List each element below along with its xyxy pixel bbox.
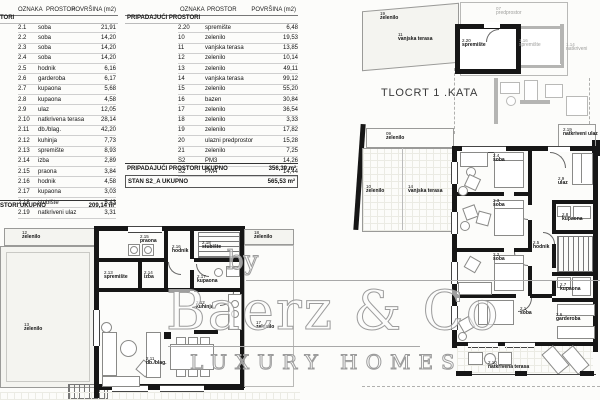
wall-interior xyxy=(552,272,598,276)
site-label-18: 18zelenilo xyxy=(254,230,272,240)
row-povrsina: 49,11 xyxy=(283,66,298,73)
room-name: predprostor xyxy=(496,11,522,16)
row-prostor: soba xyxy=(38,25,51,32)
row-prostor: db./blag. xyxy=(38,127,61,134)
room-name: soba xyxy=(493,158,505,163)
row-prostor: soba xyxy=(38,45,51,52)
wall-interior xyxy=(552,230,598,234)
row-oznaka: 2.6 xyxy=(18,76,26,83)
row-oznaka: 2.2 xyxy=(18,35,26,42)
column xyxy=(164,332,171,339)
row-povrsina: 3,84 xyxy=(104,169,116,176)
table-row: 20 ulazni predprostor 15,28 xyxy=(178,136,298,146)
wall-interior xyxy=(514,192,528,196)
left-area-table: OZNAKA PROSTOR POVRŠINA (m2) TORI 2.1 so… xyxy=(0,6,118,218)
row-prostor: zelenilo xyxy=(205,107,225,114)
wall-interior xyxy=(98,258,166,262)
room-label-2-3: 2.3soba xyxy=(493,198,505,208)
row-povrsina: 14,20 xyxy=(101,35,116,42)
wall-interior xyxy=(552,298,598,302)
site-name: zelenilo xyxy=(24,327,42,332)
left-table-total: STORI UKUPNO 209,14 m² xyxy=(0,200,116,211)
table-row: 2.17 kupaona 3,03 xyxy=(18,188,116,198)
fixture xyxy=(500,82,520,94)
row-oznaka: 10 xyxy=(178,35,185,42)
room-name: kupaona xyxy=(197,279,218,284)
row-oznaka: 12 xyxy=(178,55,185,62)
row-povrsina: 4,58 xyxy=(104,97,116,104)
room-label-2-4: 2.4soba xyxy=(493,153,505,163)
watermark-line xyxy=(246,280,600,281)
row-povrsina: 10,14 xyxy=(283,55,298,62)
table-row: 10 zelenilo 19,53 xyxy=(178,33,298,43)
row-oznaka: 2.10 xyxy=(18,117,30,124)
boundary-dashed-line xyxy=(589,78,590,124)
section-label: PRIPADAJUĆI PROSTORI xyxy=(127,15,200,21)
row-prostor: bazen xyxy=(205,97,221,104)
row-povrsina: 30,84 xyxy=(283,97,298,104)
header-povrsina: POVRŠINA (m2) xyxy=(251,7,296,14)
wall-interior xyxy=(552,244,556,268)
table-row: 2.10 natkrivena terasa 28,14 xyxy=(18,116,116,126)
terrace-table xyxy=(468,352,483,365)
site-name: zelenilo xyxy=(254,235,272,240)
chair xyxy=(176,337,186,345)
table-row: 2.15 praona 3,84 xyxy=(18,167,116,177)
row-oznaka: 2.20 xyxy=(178,25,190,32)
row-prostor: zelenilo xyxy=(205,66,225,73)
room-label-2-8: 2.8kupaona xyxy=(562,212,583,222)
wall-interior xyxy=(528,266,532,296)
row-povrsina: 14,20 xyxy=(101,45,116,52)
side-table xyxy=(458,332,467,341)
table-row: 17 zelenilo 36,54 xyxy=(178,105,298,115)
row-oznaka: 19 xyxy=(178,127,185,134)
room-name: praona xyxy=(140,239,157,244)
row-prostor: vanjska terasa xyxy=(205,76,244,83)
row-oznaka: 2.7 xyxy=(18,86,26,93)
room-label-2-6: 2.6garderoba xyxy=(556,312,580,322)
wall-interior xyxy=(530,294,552,298)
table-row: 19 zelenilo 17,82 xyxy=(178,126,298,136)
room-label-2-7: 2.7kupaona xyxy=(560,282,581,292)
room-label-2-19: 2.19 natkriveni ulaz xyxy=(563,127,598,137)
row-oznaka: 20 xyxy=(178,138,185,145)
room-name: garderoba xyxy=(556,317,580,322)
site-name: zelenilo xyxy=(380,16,398,21)
table-row: 2.6 garderoba 6,17 xyxy=(18,74,116,84)
row-oznaka: 15 xyxy=(178,86,185,93)
fixture xyxy=(566,96,588,116)
row-prostor: izba xyxy=(38,158,49,165)
row-povrsina: 8,93 xyxy=(104,148,116,155)
row-prostor: zelenilo xyxy=(205,127,225,134)
row-prostor: zelenilo xyxy=(205,86,225,93)
section-label: TORI xyxy=(0,15,14,21)
site-label-14: 14 vanjska terasa xyxy=(408,184,442,194)
room-name: izba xyxy=(144,275,154,280)
row-povrsina: 3,33 xyxy=(286,117,298,124)
armchair xyxy=(464,256,482,274)
table-row: 2.7 kupaona 5,68 xyxy=(18,85,116,95)
coffee-table xyxy=(120,340,137,357)
row-prostor: vanjska terasa xyxy=(205,45,244,52)
table-row: 2.3 soba 14,20 xyxy=(18,44,116,54)
middle-area-table: OZNAKA PROSTOR POVRŠINA (m2) PRIPADAJUĆI… xyxy=(125,6,298,196)
row-povrsina: 3,03 xyxy=(104,189,116,196)
room-name: natkriveni xyxy=(566,47,587,52)
chair xyxy=(200,369,210,377)
row-povrsina: 15,28 xyxy=(283,138,298,145)
site-label-12: 12zelenilo xyxy=(22,230,40,240)
table-row: 18 zelenilo 3,33 xyxy=(178,116,298,126)
room-name: kupaona xyxy=(562,217,583,222)
room-name: stubište xyxy=(202,245,221,250)
row-oznaka: 2.17 xyxy=(18,189,30,196)
room-name: hodnik xyxy=(172,249,188,254)
row-povrsina: 7,25 xyxy=(286,148,298,155)
table-row: 2.4 soba 14,20 xyxy=(18,54,116,64)
wall-interior xyxy=(190,231,194,259)
room-name: db./blag. xyxy=(146,361,167,366)
row-oznaka: 2.1 xyxy=(18,25,26,32)
row-prostor: kuhinja xyxy=(38,138,57,145)
site-name: zelenilo xyxy=(22,235,40,240)
zelenilo-strip-09 xyxy=(366,128,454,148)
site-name: zelenilo xyxy=(366,189,384,194)
site-name: zelenilo xyxy=(256,325,274,330)
row-oznaka: 2.14 xyxy=(18,158,30,165)
closet-divider xyxy=(581,153,582,183)
table-row: 16 bazen 30,84 xyxy=(178,95,298,105)
row-oznaka: 17 xyxy=(178,107,185,114)
left-table-rows: 2.1 soba 21,91 2.2 soba 14,20 2.3 soba 1… xyxy=(18,23,116,219)
cabinet xyxy=(146,332,161,378)
room-label-2-14: 2.14izba xyxy=(144,270,154,280)
room-label-2-15: 2.15praona xyxy=(140,234,157,244)
row-oznaka: 2.5 xyxy=(18,66,26,73)
room-label-2-13: 2.13spremište xyxy=(104,270,128,280)
table-row: 2.2 soba 14,20 xyxy=(18,33,116,43)
wall-interior xyxy=(138,262,142,290)
armchair xyxy=(476,211,492,227)
desk xyxy=(460,152,488,167)
table-row: 2.1 soba 21,91 xyxy=(18,23,116,33)
table-row: 12 zelenilo 10,14 xyxy=(178,54,298,64)
header-povrsina: POVRŠINA (m2) xyxy=(71,7,116,14)
window xyxy=(128,226,162,233)
row-povrsina: 19,53 xyxy=(283,35,298,42)
room-label-1-14: 1.14 natkriveni xyxy=(566,42,587,52)
door-gap xyxy=(484,22,500,28)
floorplan-sheet: OZNAKA PROSTOR POVRŠINA (m2) TORI 2.1 so… xyxy=(0,0,600,400)
chair xyxy=(188,369,198,377)
room-name: kupaona xyxy=(560,287,581,292)
row-prostor: natkrivena terasa xyxy=(38,117,84,124)
area-inner-line xyxy=(6,252,90,382)
room-name: spremište xyxy=(519,43,541,48)
room-label-2-12: 2.12kuhinja xyxy=(196,300,214,310)
site-label-09: 09 zelenilo xyxy=(386,131,404,141)
armchair xyxy=(458,316,476,334)
dryer-drum xyxy=(144,246,152,254)
wall-interior xyxy=(552,200,556,230)
divider-line xyxy=(402,148,403,230)
wall-interior xyxy=(528,151,532,205)
row-prostor: praona xyxy=(38,169,57,176)
gray-wall xyxy=(494,78,498,124)
row-oznaka: 14 xyxy=(178,76,185,83)
room-label-2-18: 2.18stubište xyxy=(202,240,221,250)
room-label-2-16: 2.16hodnik xyxy=(172,244,188,254)
plan-title: TLOCRT 1 .KATA xyxy=(381,87,478,99)
terrace-post xyxy=(580,371,594,376)
total-value: 209,14 m² xyxy=(89,203,116,210)
middle-table-rows: 2.20 spremište 6,48 10 zelenilo 19,53 11… xyxy=(178,23,298,177)
site-label-17: 17zelenilo xyxy=(256,320,274,330)
wall-right xyxy=(593,146,598,352)
room-name: spremište xyxy=(104,275,128,280)
staircase xyxy=(557,236,593,272)
table-row: 2.14 izba 2,89 xyxy=(18,157,116,167)
room-name: spremište xyxy=(462,43,486,48)
wall-top xyxy=(94,226,244,231)
room-label-1-16: 1.16 spremište xyxy=(519,38,541,48)
hob xyxy=(231,310,239,318)
site-label-vanjska-terasa-top: 11 vanjska terasa xyxy=(398,32,432,42)
boundary-dashed-line xyxy=(454,68,455,134)
table-row: 2.13 spremište 8,93 xyxy=(18,147,116,157)
room-name: ulaz xyxy=(558,181,568,186)
room-name: soba xyxy=(493,203,505,208)
row-prostor: hodnik xyxy=(38,66,56,73)
row-povrsina: 5,68 xyxy=(104,86,116,93)
row-prostor: kupaona xyxy=(38,97,61,104)
wall-interior xyxy=(194,258,242,262)
room-label-2-9: 2.9ulaz xyxy=(558,176,568,186)
room-label-2-5: 2.5hodnik xyxy=(533,240,549,250)
site-name: vanjska terasa xyxy=(408,189,442,194)
site-label-10: 10 zelenilo xyxy=(366,184,384,194)
fixture xyxy=(524,80,538,102)
wall-interior xyxy=(552,280,556,296)
desk xyxy=(458,282,492,295)
row-oznaka: 16 xyxy=(178,97,185,104)
row-oznaka: 2.9 xyxy=(18,107,26,114)
room-label-2-17: 2.17kupaona xyxy=(197,274,218,284)
row-povrsina: 55,20 xyxy=(283,86,298,93)
apartment-grand-total: STAN S2_A UKUPNO 565,53 m² xyxy=(125,175,298,188)
terrace-post xyxy=(456,371,472,376)
room-label-2-20: 2.20 spremište xyxy=(462,38,486,48)
table-row: 21 zelenilo 7,25 xyxy=(178,147,298,157)
chair xyxy=(176,369,186,377)
row-povrsina: 17,82 xyxy=(283,127,298,134)
hob xyxy=(231,300,239,308)
header-oznaka: OZNAKA xyxy=(18,7,43,14)
wardrobe xyxy=(557,326,595,339)
sofa xyxy=(102,332,117,376)
door-arc xyxy=(550,152,566,168)
total-label: PRIPADAJUĆI PROSTORI UKUPNO xyxy=(127,166,228,173)
zelenilo-strip-12 xyxy=(4,228,98,246)
chair xyxy=(188,337,198,345)
row-prostor: zelenilo xyxy=(205,55,225,62)
row-povrsina: 42,20 xyxy=(101,127,116,134)
row-oznaka: 13 xyxy=(178,66,185,73)
closet xyxy=(572,153,593,185)
room-name: natkrivena terasa xyxy=(488,365,529,370)
room-label-2-2: 2.2soba xyxy=(493,252,505,262)
row-prostor: ulazni predprostor xyxy=(205,138,253,145)
grand-value: 565,53 m² xyxy=(268,179,295,186)
window xyxy=(160,385,204,392)
wall-interior xyxy=(552,200,598,204)
side-table xyxy=(460,221,470,231)
wall-interior xyxy=(194,288,242,292)
row-povrsina: 14,20 xyxy=(101,55,116,62)
row-oznaka: 2.12 xyxy=(18,138,30,145)
row-prostor: soba xyxy=(38,55,51,62)
table-row: 2.16 hodnik 4,58 xyxy=(18,177,116,187)
row-povrsina: 4,58 xyxy=(104,179,116,186)
grand-label: STAN S2_A UKUPNO xyxy=(128,179,188,186)
total-value: 356,39 m² xyxy=(269,166,296,173)
room-label-predprostor: 07 predprostor xyxy=(496,6,522,16)
row-povrsina: 21,91 xyxy=(101,25,116,32)
row-oznaka: 2.8 xyxy=(18,97,26,104)
row-oznaka: 2.11 xyxy=(18,127,29,134)
row-prostor: zelenilo xyxy=(205,148,225,155)
header-oznaka: OZNAKA xyxy=(180,7,205,14)
row-prostor: kupaona xyxy=(38,86,61,93)
table-row: 2.20 spremište 6,48 xyxy=(178,23,298,33)
middle-table-total: PRIPADAJUĆI PROSTORI UKUPNO 356,39 m² xyxy=(125,163,298,174)
room-name: soba xyxy=(520,311,532,316)
row-prostor: zelenilo xyxy=(205,35,225,42)
row-oznaka: 18 xyxy=(178,117,185,124)
site-label-zelenilo: 19 zelenilo xyxy=(380,11,398,21)
table-row: 2.11 db./blag. 42,20 xyxy=(18,126,116,136)
plant xyxy=(101,322,112,333)
side-table xyxy=(458,186,468,196)
row-povrsina: 12,05 xyxy=(101,107,116,114)
row-povrsina: 6,16 xyxy=(104,66,116,73)
ground-strip xyxy=(0,392,300,400)
row-prostor: hodnik xyxy=(38,179,56,186)
wall-interior xyxy=(528,220,532,252)
boundary-dashed-line xyxy=(362,386,600,387)
row-povrsina: 13,85 xyxy=(283,45,298,52)
total-label: STORI UKUPNO xyxy=(0,203,46,210)
zelenilo-area-17 xyxy=(244,245,294,387)
row-povrsina: 99,12 xyxy=(283,76,298,83)
room-2-20-walls xyxy=(455,24,521,74)
row-oznaka: 2.16 xyxy=(18,179,30,186)
room-label-2-1: 2.1soba xyxy=(520,306,532,316)
table-row: 11 vanjska terasa 13,85 xyxy=(178,44,298,54)
row-oznaka: 2.3 xyxy=(18,45,26,52)
site-name: vanjska terasa xyxy=(398,37,432,42)
row-povrsina: 36,54 xyxy=(283,107,298,114)
table-row: 13 zelenilo 49,11 xyxy=(178,64,298,74)
table-row: 2.12 kuhinja 7,73 xyxy=(18,136,116,146)
table-row: 14 vanjska terasa 99,12 xyxy=(178,74,298,84)
fixture xyxy=(545,84,563,98)
fixture xyxy=(506,96,516,106)
row-prostor: soba xyxy=(38,35,51,42)
row-prostor: garderoba xyxy=(38,76,65,83)
washer-drum xyxy=(130,246,138,254)
door-arc xyxy=(168,262,181,275)
window xyxy=(93,310,100,346)
room-name: kuhinja xyxy=(196,305,214,310)
site-name: zelenilo xyxy=(386,136,404,141)
row-oznaka: 11 xyxy=(178,45,184,52)
row-povrsina: 7,73 xyxy=(104,138,116,145)
room-label-2-10: 2.10natkrivena terasa xyxy=(488,360,529,370)
row-povrsina: 6,17 xyxy=(104,76,116,83)
room-name: hodnik xyxy=(533,245,549,250)
chair xyxy=(200,337,210,345)
row-oznaka: 2.15 xyxy=(18,169,30,176)
watermark-tagline: LUXURY HOMES xyxy=(190,350,463,374)
row-oznaka: 2.13 xyxy=(18,148,30,155)
room-name: soba xyxy=(493,257,505,262)
sofa xyxy=(102,376,140,387)
gray-wall xyxy=(560,24,564,64)
window xyxy=(451,212,458,234)
room-name: natkriveni ulaz xyxy=(563,132,598,137)
row-prostor: spremište xyxy=(38,148,64,155)
room-label-2-11: 2.11db./blag. xyxy=(146,356,167,366)
row-povrsina: 2,89 xyxy=(104,158,116,165)
table-row: 2.8 kupaona 4,58 xyxy=(18,95,116,105)
table-row: 2.5 hodnik 6,16 xyxy=(18,64,116,74)
sink xyxy=(226,266,240,277)
header-prostor: PROSTOR xyxy=(207,7,237,14)
pillow xyxy=(478,300,488,325)
window xyxy=(451,306,458,330)
site-label-13: 13zelenilo xyxy=(24,322,42,332)
row-prostor: kupaona xyxy=(38,189,61,196)
row-povrsina: 28,14 xyxy=(101,117,116,124)
window xyxy=(451,162,458,184)
table-row: 2.9 ulaz 12,05 xyxy=(18,105,116,115)
watermark-line xyxy=(168,346,420,347)
wall-interior xyxy=(98,288,190,292)
row-oznaka: 2.4 xyxy=(18,55,26,62)
terrace-post xyxy=(515,371,527,376)
row-oznaka: 21 xyxy=(178,148,185,155)
wall-interior xyxy=(194,330,218,334)
gray-wall xyxy=(520,100,550,104)
row-povrsina: 6,48 xyxy=(286,25,298,32)
row-prostor: spremište xyxy=(205,25,231,32)
row-prostor: ulaz xyxy=(38,107,49,114)
table-row: 15 zelenilo 55,20 xyxy=(178,85,298,95)
row-prostor: zelenilo xyxy=(205,117,225,124)
dining-table xyxy=(170,344,214,370)
